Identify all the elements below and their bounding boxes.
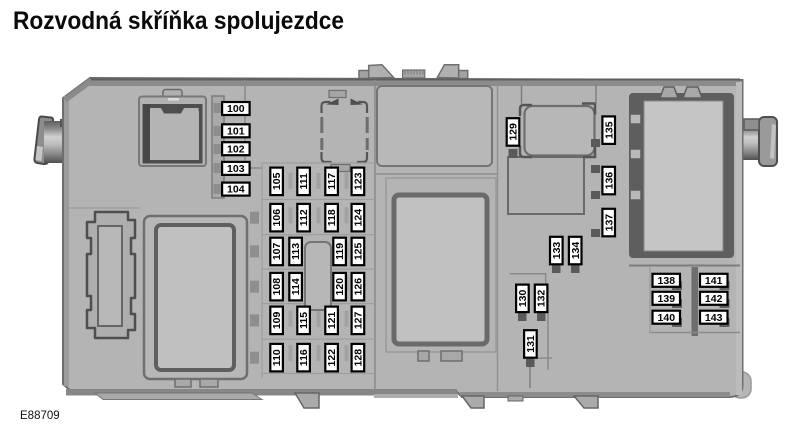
- svg-text:104: 104: [227, 184, 245, 196]
- svg-text:125: 125: [353, 242, 365, 260]
- svg-text:105: 105: [271, 172, 283, 190]
- svg-text:122: 122: [326, 349, 338, 367]
- svg-text:111: 111: [298, 173, 310, 190]
- svg-text:137: 137: [603, 214, 615, 232]
- svg-text:101: 101: [227, 125, 245, 137]
- svg-text:115: 115: [298, 312, 310, 329]
- svg-text:128: 128: [353, 349, 365, 367]
- svg-text:138: 138: [658, 275, 676, 287]
- svg-text:110: 110: [271, 349, 283, 366]
- svg-text:114: 114: [290, 278, 302, 295]
- svg-text:109: 109: [271, 311, 283, 329]
- svg-text:106: 106: [271, 209, 283, 227]
- svg-text:124: 124: [353, 209, 365, 227]
- svg-text:134: 134: [570, 242, 582, 260]
- svg-text:135: 135: [603, 121, 615, 139]
- svg-text:129: 129: [508, 123, 520, 141]
- svg-text:Rozvodná skříňka spolujezdce: Rozvodná skříňka spolujezdce: [13, 7, 344, 35]
- svg-text:142: 142: [705, 293, 723, 305]
- svg-text:121: 121: [326, 311, 338, 329]
- svg-text:E88709: E88709: [20, 410, 60, 422]
- svg-text:102: 102: [227, 143, 245, 155]
- svg-text:136: 136: [603, 172, 615, 190]
- svg-text:130: 130: [517, 289, 529, 307]
- svg-text:118: 118: [326, 209, 338, 226]
- svg-text:100: 100: [227, 103, 245, 115]
- svg-text:107: 107: [271, 242, 283, 260]
- svg-text:117: 117: [326, 173, 338, 190]
- svg-text:141: 141: [705, 275, 723, 287]
- svg-text:139: 139: [658, 293, 676, 305]
- svg-text:108: 108: [271, 278, 283, 296]
- svg-text:131: 131: [525, 335, 537, 353]
- svg-text:132: 132: [536, 289, 548, 307]
- svg-text:116: 116: [298, 349, 310, 366]
- svg-text:127: 127: [353, 311, 365, 329]
- svg-text:126: 126: [353, 278, 365, 296]
- svg-text:143: 143: [705, 312, 723, 324]
- svg-text:112: 112: [298, 209, 310, 226]
- svg-text:113: 113: [290, 243, 302, 260]
- svg-text:140: 140: [658, 312, 676, 324]
- svg-text:103: 103: [227, 163, 245, 175]
- svg-text:123: 123: [353, 172, 365, 190]
- svg-text:119: 119: [334, 243, 346, 260]
- svg-text:133: 133: [551, 242, 563, 260]
- svg-text:120: 120: [334, 278, 346, 296]
